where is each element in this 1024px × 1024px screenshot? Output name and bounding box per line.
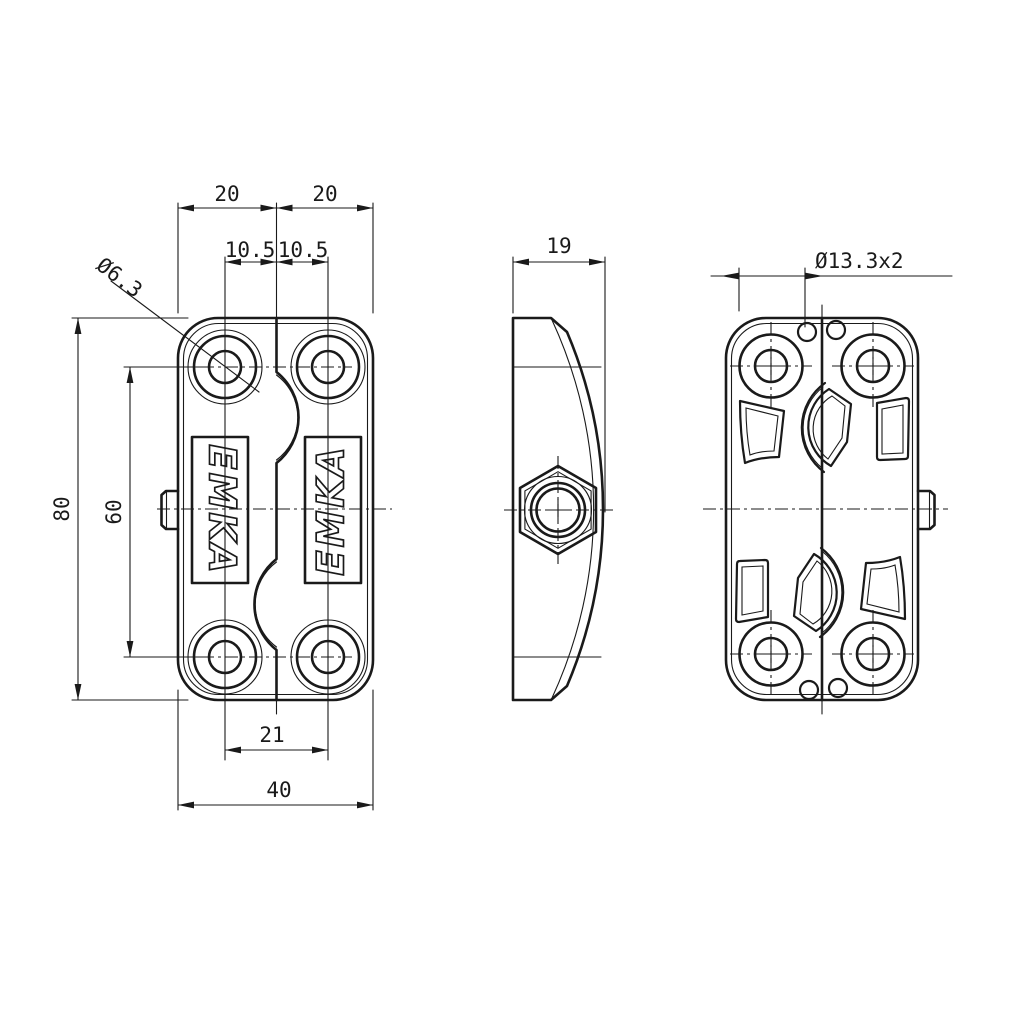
dim-label-21: 21 [259,723,284,747]
front-view: EMKA EMKA [157,318,392,714]
technical-drawing: EMKA EMKA [0,0,1024,1024]
dim-counterbore: Ø13.3x2 [711,249,952,327]
dim-label-60: 60 [102,499,126,524]
dim-label-20-left: 20 [214,182,239,206]
dim-hole-diameter: Ø6.3 [92,253,259,392]
technical-drawing-page: EMKA EMKA [0,0,1024,1024]
dim-hole-vspacing: 60 [102,367,204,657]
dim-label-hole-dia: Ø6.3 [92,253,147,303]
logo-text-right: EMKA [310,444,353,575]
dim-depth: 19 [513,234,605,512]
dim-label-40: 40 [266,778,291,802]
dim-top-widths: 20 20 [178,182,373,318]
side-view [504,318,614,700]
logo-plate-right: EMKA [305,437,361,583]
logo-text-left: EMKA [201,444,244,575]
dim-label-10-5-right: 10.5 [278,238,329,262]
dimensions: 20 20 10.5 10.5 Ø6.3 80 [50,182,952,810]
logo-plate-left: EMKA [192,437,248,583]
back-view [703,305,948,714]
dim-hole-hspacing: 21 [225,723,328,753]
back-right-tab [918,491,935,529]
dim-label-10-5-left: 10.5 [225,238,276,262]
side-hex-nut [504,456,614,564]
dim-label-counterbore: Ø13.3x2 [815,249,904,273]
front-left-tab [162,491,179,529]
dim-label-19: 19 [546,234,571,258]
side-hole-level-lines [513,367,601,657]
dim-label-20-right: 20 [312,182,337,206]
dim-label-80: 80 [50,496,74,521]
